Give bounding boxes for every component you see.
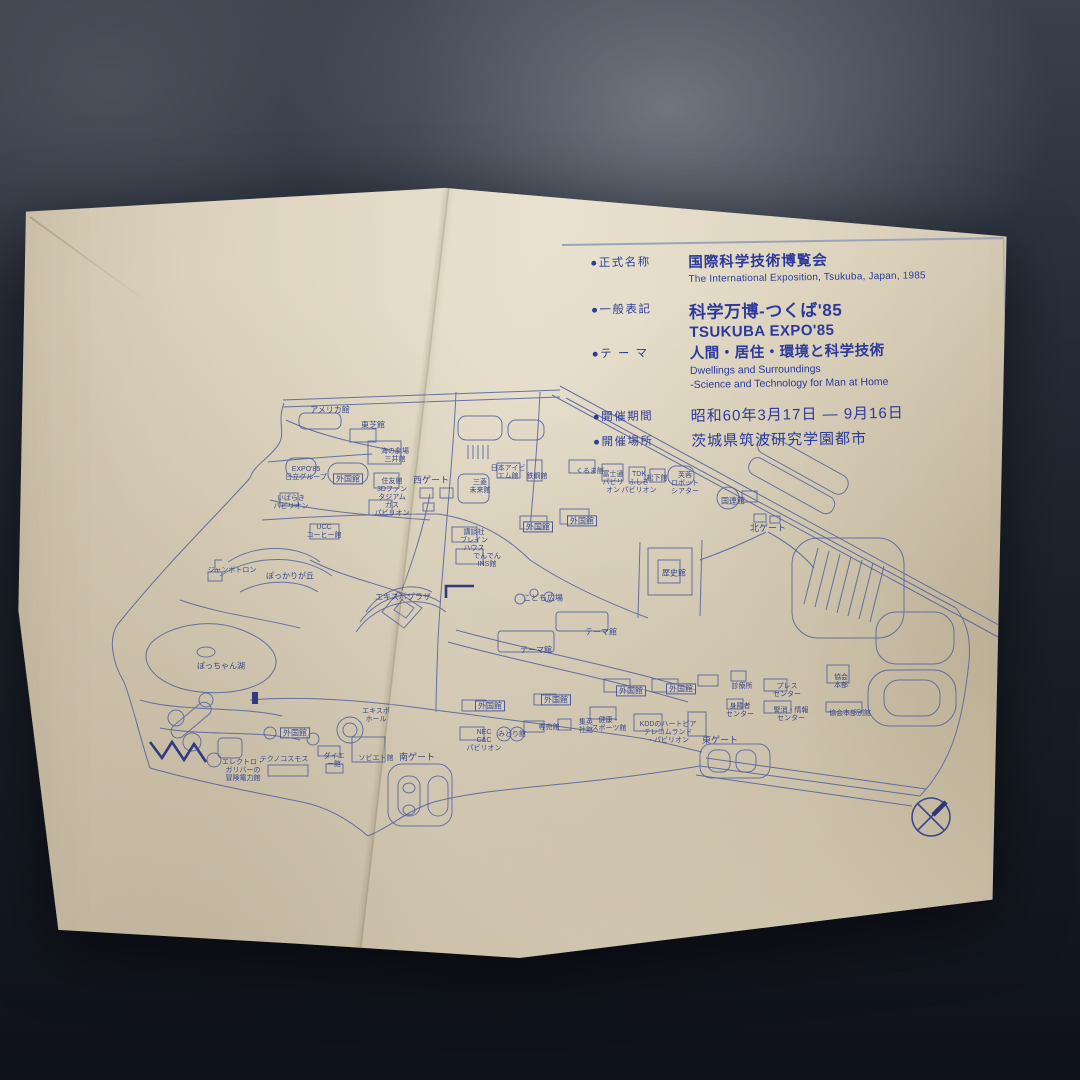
map-label: ぽっちゃん湖: [197, 661, 245, 670]
map-label: KDDのハートピア テレコムランド ・パビリオン: [640, 721, 697, 745]
map-label: 南ゲート: [399, 752, 435, 762]
map-label: アメリカ館: [310, 405, 350, 414]
map-label: くるま館: [576, 468, 604, 476]
map-label: 日本アイビ エム館: [491, 465, 526, 481]
period-value: 昭和60年3月17日 — 9月16日: [691, 400, 1002, 426]
expo-info-panel: ●正式名称 国際科学技術博覧会 The International Exposi…: [562, 237, 1007, 463]
map-label: UCC コーヒー館: [307, 524, 342, 540]
map-label: 海の劇場 三井館: [381, 448, 409, 464]
info-row-theme: ●テ ー マ 人間・居住・環境と科学技術 Dwellings and Surro…: [592, 337, 1002, 392]
paper-shadow: アメリカ館東芝館海の劇場 三井館EXPO'85 日立グループ外国館住友館 3Dフ…: [0, 0, 1080, 1080]
map-label: 国連館: [721, 496, 745, 505]
location-value: 茨城県筑波研究学園都市: [691, 425, 1002, 451]
map-label: 富士通 パビリ オン: [603, 471, 624, 495]
map-label: プレス センター: [773, 683, 801, 699]
map-label: エレクトロ・ ガリバーの 冒険電力館: [222, 759, 264, 783]
map-label: 外国館: [523, 521, 553, 532]
map-label: みどり館: [498, 731, 526, 739]
map-label: ジャンボトロン: [208, 567, 257, 575]
map-label: 講談社 ブレイン ハウス: [460, 529, 488, 553]
map-label: 外国館: [666, 683, 696, 694]
map-label: 外国館: [280, 727, 310, 738]
map-label: テクノコスモス: [260, 756, 309, 764]
map-label: 協会 本部: [834, 674, 848, 690]
map-label: 診療所: [732, 683, 753, 691]
info-label: ●開催場所: [593, 430, 691, 450]
map-label: 身障者 センター: [726, 703, 754, 719]
info-label: ●正式名称: [590, 251, 688, 271]
photo-background: アメリカ館東芝館海の劇場 三井館EXPO'85 日立グループ外国館住友館 3Dフ…: [0, 0, 1080, 1080]
map-label: テーマ館: [585, 627, 617, 636]
info-label: ●テ ー マ: [592, 342, 690, 362]
map-label: いばらき パビリオン: [274, 495, 309, 511]
info-label: ●開催期間: [593, 405, 691, 425]
map-sheet: アメリカ館東芝館海の劇場 三井館EXPO'85 日立グループ外国館住友館 3Dフ…: [0, 0, 1080, 1080]
map-label: 東芝館: [361, 420, 385, 429]
map-label: 健康・ スポーツ館: [592, 717, 627, 733]
map-label: 専売館: [539, 724, 560, 732]
map-label: 外国館: [475, 700, 505, 711]
info-row-location: ●開催場所 茨城県筑波研究学園都市: [593, 425, 1002, 452]
theme-ja: 人間・居住・環境と科学技術: [690, 337, 1001, 363]
info-row-common-name: ●一般表記 科学万博-つくば'85 TSUKUBA EXPO'85: [591, 293, 1001, 342]
map-label: 松下館: [647, 475, 668, 483]
map-label: 北ゲート: [750, 523, 786, 533]
map-label: 鉄鋼館: [527, 473, 548, 481]
official-name-en: The International Exposition, Tsukuba, J…: [688, 269, 999, 285]
map-label: 警消・情報 センター: [774, 707, 809, 723]
map-label: でんでん INS館: [473, 553, 501, 569]
info-label: ●一般表記: [591, 298, 689, 318]
map-label: 歴史館: [662, 568, 686, 577]
common-name-ja: 科学万博-つくば'85: [689, 293, 1000, 323]
map-label: 三菱 未来館: [470, 479, 491, 495]
info-row-official-name: ●正式名称 国際科学技術博覧会 The International Exposi…: [590, 246, 999, 286]
map-label: こども広場: [523, 593, 563, 602]
map-label: 芙蓉 ロボット シアター: [671, 472, 699, 496]
map-label: NEC C&C パビリオン: [467, 729, 502, 753]
map-label: 協会本部別館: [829, 710, 871, 718]
map-label: EXPO'85 日立グループ: [285, 466, 327, 482]
theme-en-line2: -Science and Technology for Man at Home: [690, 374, 1001, 391]
official-name-ja: 国際科学技術博覧会: [688, 246, 999, 272]
map-label: ぽっかりが丘: [266, 571, 314, 580]
map-label: 外国館: [541, 694, 571, 705]
info-row-period: ●開催期間 昭和60年3月17日 — 9月16日: [593, 400, 1002, 427]
map-label: 外国館: [567, 515, 597, 526]
map-label: 住友館 3Dファン タジアム: [377, 478, 407, 502]
map-label: テーマ館: [520, 645, 552, 654]
map-label: 外国館: [333, 473, 363, 484]
map-label: ダイエ ー館: [324, 753, 345, 769]
map-label: 東ゲート: [702, 735, 738, 745]
map-label: 外国館: [616, 685, 646, 696]
map-labels-layer: アメリカ館東芝館海の劇場 三井館EXPO'85 日立グループ外国館住友館 3Dフ…: [0, 0, 1080, 1080]
